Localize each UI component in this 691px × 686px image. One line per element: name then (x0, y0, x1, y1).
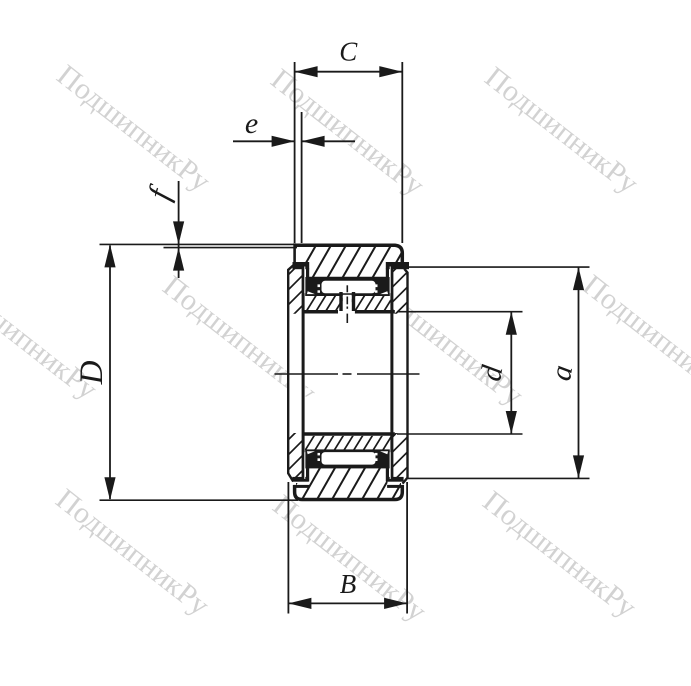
svg-text:C: C (339, 37, 358, 67)
svg-text:e: e (245, 107, 258, 140)
svg-text:D: D (74, 360, 110, 385)
svg-text:B: B (340, 569, 357, 599)
